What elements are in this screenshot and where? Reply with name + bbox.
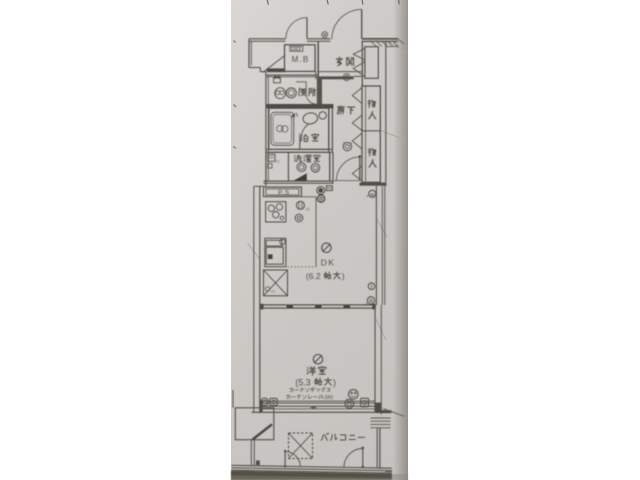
svg-text:21: 21 — [271, 290, 275, 294]
svg-text:21: 21 — [276, 160, 280, 164]
svg-text:): ) — [333, 378, 336, 388]
svg-text:(6.2: (6.2 — [306, 271, 321, 281]
svg-text:(5.3: (5.3 — [295, 378, 310, 388]
svg-text:DK: DK — [321, 257, 336, 267]
svg-text:(W): (W) — [324, 395, 333, 401]
svg-text:P.S: P.S — [278, 190, 290, 197]
svg-text:M.B: M.B — [292, 55, 310, 64]
svg-text:21: 21 — [306, 208, 310, 212]
svg-text:): ) — [342, 271, 345, 281]
